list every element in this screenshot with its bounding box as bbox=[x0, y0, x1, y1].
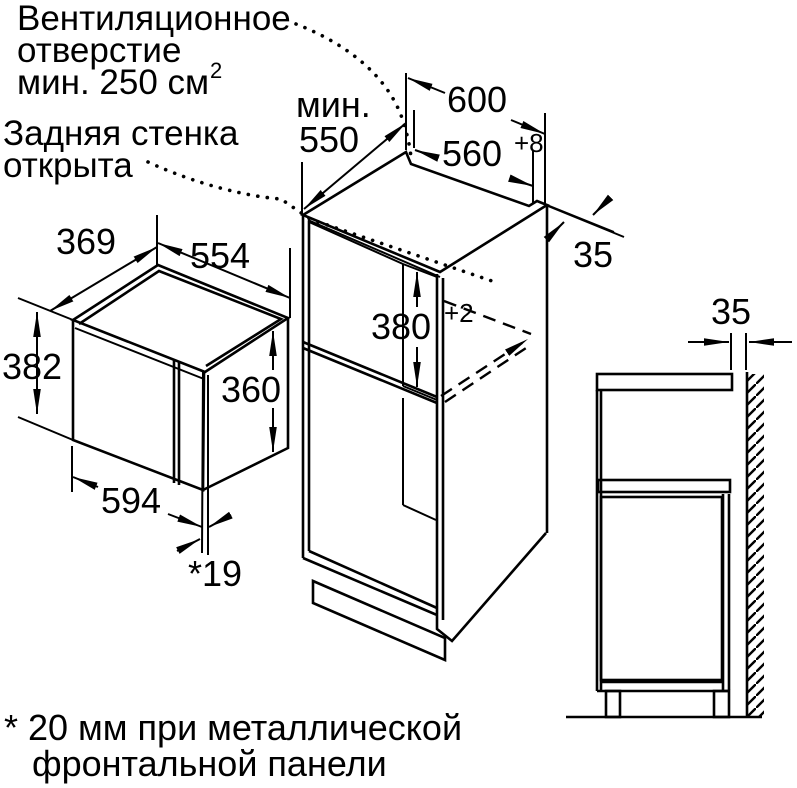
cabinet-view: мин. 550 600 560 +8 35 380 bbox=[296, 73, 624, 660]
wall-hatching bbox=[747, 374, 764, 717]
dim-wall-clearance-value: 35 bbox=[711, 291, 751, 332]
oven-top-face bbox=[73, 265, 288, 372]
dim-oven-height: 382 bbox=[2, 312, 73, 440]
dim-rear-edge-gap-value: 35 bbox=[573, 234, 613, 275]
dimension-line-left bbox=[73, 477, 98, 487]
dim-niche-width-tolerance: +8 bbox=[514, 128, 544, 158]
cabinet-bottom-rails bbox=[303, 533, 546, 641]
dimension-line-right bbox=[512, 179, 533, 186]
dim-oven-side-height: 360 bbox=[221, 331, 281, 452]
oven-door-edge-lines bbox=[174, 360, 179, 485]
dim-oven-depth-value: 369 bbox=[56, 221, 116, 262]
cabinet-top-face bbox=[303, 152, 547, 272]
arrow-upper bbox=[593, 199, 609, 215]
dim-niche-height-tolerance: +2 bbox=[444, 298, 474, 328]
cabinet-vertical-edges bbox=[303, 205, 547, 620]
arrow-lower bbox=[549, 222, 564, 237]
dashed-bottom-arrow bbox=[441, 339, 528, 396]
arrow-right bbox=[209, 515, 231, 527]
rear-note-line-2: открыта bbox=[3, 146, 133, 185]
dimension-line-right bbox=[168, 514, 202, 527]
dim-min-depth-value: 550 bbox=[299, 119, 359, 160]
vent-note-line-3: мин. 250 см bbox=[17, 63, 209, 102]
installation-diagram: 369 554 382 360 594 bbox=[0, 0, 797, 788]
dim-oven-height-value: 382 bbox=[2, 346, 62, 387]
footnote-line-1: * 20 мм при металлической bbox=[4, 707, 462, 748]
extension-lines bbox=[731, 333, 746, 370]
countertop bbox=[597, 374, 732, 390]
dim-niche-width-value: 560 bbox=[442, 133, 502, 174]
dim-wall-clearance: 35 bbox=[688, 291, 792, 370]
extension-line bbox=[18, 417, 73, 440]
dim-oven-depth: 369 bbox=[18, 215, 157, 320]
dimension-line-left bbox=[408, 78, 445, 93]
dashed-bottom-2 bbox=[445, 344, 532, 402]
dim-oven-top-width: 554 bbox=[158, 235, 290, 318]
footnote-line-2: фронтальной панели bbox=[32, 743, 387, 784]
dim-cabinet-width-value: 600 bbox=[447, 79, 507, 120]
dim-oven-front-width: 594 bbox=[72, 446, 202, 527]
lower-cabinet-panel bbox=[601, 497, 722, 680]
installation-diagram-page: 369 554 382 360 594 bbox=[0, 0, 797, 788]
dim-door-projection: *19 bbox=[177, 515, 242, 594]
dim-rear-edge-gap: 35 bbox=[537, 199, 624, 275]
dim-door-projection-value: *19 bbox=[188, 553, 242, 594]
dim-niche-height: 380 +2 bbox=[371, 272, 474, 387]
vent-note-superscript: 2 bbox=[210, 58, 222, 83]
microwave-oven-view: 369 554 382 360 594 bbox=[2, 215, 290, 594]
cabinet-top-face-inner bbox=[308, 220, 440, 277]
dim-niche-height-value: 380 bbox=[371, 306, 431, 347]
dim-min-depth: мин. 550 bbox=[296, 84, 406, 213]
dimension-line-left bbox=[415, 150, 438, 158]
dim-oven-side-height-value: 360 bbox=[221, 369, 281, 410]
foot-right bbox=[714, 691, 729, 717]
oven-top-face-inner bbox=[79, 271, 281, 366]
arrow-left bbox=[177, 539, 200, 551]
side-view: 35 bbox=[566, 291, 792, 717]
shelf bbox=[598, 480, 730, 492]
back-panel-edges bbox=[723, 494, 729, 690]
foot-left bbox=[606, 691, 620, 717]
bottom-edges bbox=[597, 682, 730, 691]
oven-door-top-edge bbox=[75, 328, 204, 379]
cabinet-plinth bbox=[313, 581, 445, 660]
dim-oven-top-width-value: 554 bbox=[190, 235, 250, 276]
extension-lines bbox=[537, 201, 624, 237]
dim-oven-front-width-value: 594 bbox=[101, 480, 161, 521]
